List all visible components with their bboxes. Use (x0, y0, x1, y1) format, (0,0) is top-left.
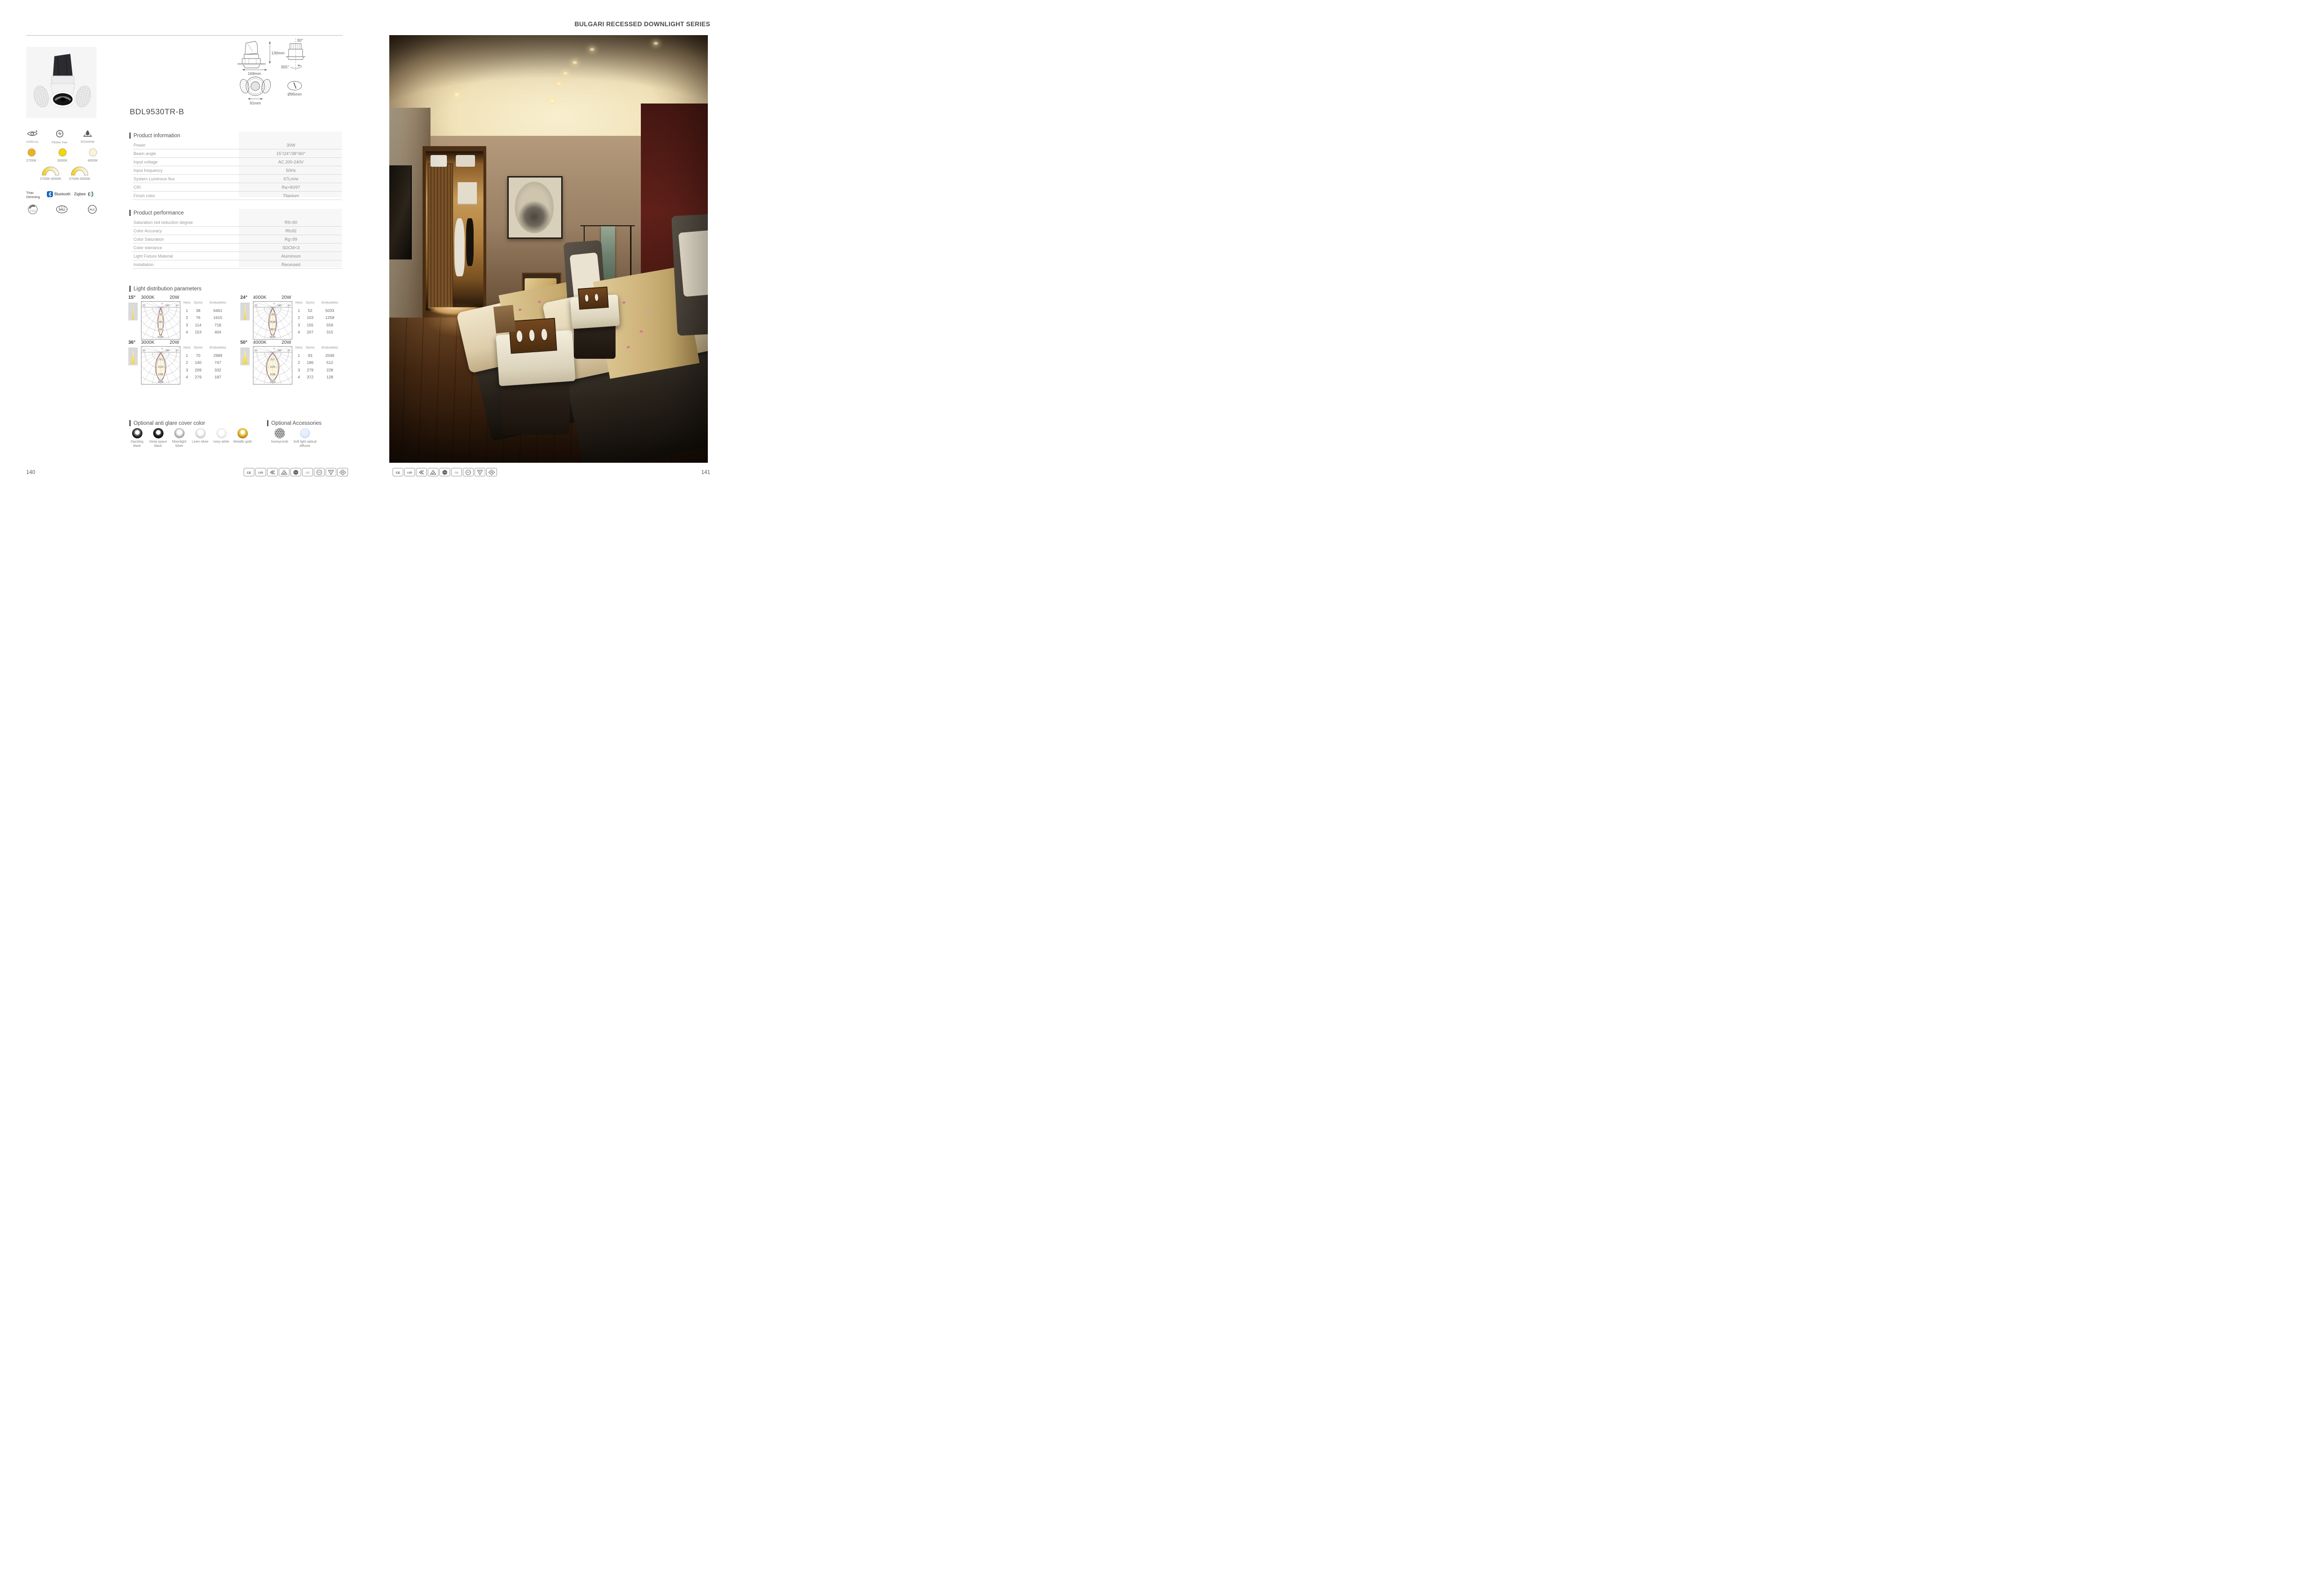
svg-text:CCC: CCC (318, 471, 321, 473)
svg-text:5076: 5076 (270, 336, 275, 339)
ld-cell: 404 (205, 330, 231, 334)
svg-text:CE: CE (396, 471, 401, 474)
power-label: 20W (282, 295, 291, 300)
ld-cell: 1615 (205, 315, 231, 320)
section-bar (129, 210, 131, 216)
ld-row: 4207315 (294, 329, 344, 336)
ld-cell: 4 (294, 330, 304, 334)
softlight-swatch (300, 428, 310, 438)
ld-cell: 187 (205, 375, 231, 379)
ld-col-header: H(m) (294, 346, 304, 352)
ld-diagram: 24°4000K20W0°90°180°90°1269253838075076H… (240, 295, 344, 340)
accessory-options: honeycombSoft light optical diffuser (267, 428, 318, 448)
cct-label: 3000K (141, 340, 155, 345)
cct-3000k-dot (59, 148, 67, 156)
cert-badge-ccc: CCC (314, 468, 325, 476)
glare-option: Ivory white (211, 428, 232, 448)
svg-text:2050: 2050 (270, 381, 275, 384)
ld-row: 3114718 (182, 321, 232, 329)
certification-badges-left: CELVDTÜVGBCCCF (244, 468, 348, 476)
cert-badge-rcm (279, 468, 290, 476)
glare-option: Deep space black (148, 428, 169, 448)
svg-text:761: 761 (159, 358, 163, 361)
spec-value: Aluminium (240, 254, 342, 259)
ld-col-header: H(m) (294, 301, 304, 307)
ld-cell: 747 (205, 360, 231, 365)
cert-badge-iii (486, 468, 497, 476)
ld-table: H(m)D(cm)Em(lux/klm)13864612761615311471… (182, 301, 232, 336)
spec-value: 30W (240, 143, 342, 148)
section-bar (129, 286, 131, 292)
spec-value: SDCM<3 (240, 245, 342, 250)
spec-label: Color Saturation (133, 237, 240, 242)
ld-cell: 279 (192, 375, 205, 379)
ld-cell: 4 (182, 330, 192, 334)
power-label: 20W (170, 295, 179, 300)
dim-height: 130mm (271, 51, 284, 55)
spec-value: Ra>90/97 (240, 185, 342, 190)
ld-cell: 140 (192, 360, 205, 365)
svg-text:0°: 0° (274, 348, 276, 350)
ld-col-header: D(cm) (304, 301, 317, 307)
ld-cell: 228 (317, 368, 343, 372)
beam-cone-icon (128, 303, 138, 320)
spec-row: Color AccuracyRf≥92 (133, 227, 342, 235)
power-label: 20W (170, 340, 179, 345)
glare-option: Metallic gold (232, 428, 253, 448)
section-anti-glare: Optional anti glare cover color (129, 420, 205, 426)
cert-badge-ccc: CCC (463, 468, 474, 476)
ld-row: 1932049 (294, 352, 344, 359)
zigbee-label: Zigbee (74, 192, 86, 196)
ld-cell: 332 (205, 368, 231, 372)
svg-text:CCC: CCC (467, 471, 470, 473)
dim-cutout: Ø95mm (288, 92, 302, 96)
ld-col-header: H(m) (182, 301, 192, 307)
spec-value: Recessed (240, 262, 342, 267)
svg-text:PLC: PLC (89, 208, 95, 211)
ld-row: 4153404 (182, 329, 232, 336)
cert-badge-rcm (428, 468, 438, 476)
spec-row: Color toleranceSDCM<3 (133, 244, 342, 252)
ld-cell: 718 (205, 323, 231, 327)
ld-col-header: Em(lux/klm) (205, 346, 231, 352)
bluetooth-label: Bluetooth (54, 192, 71, 196)
cct-label: 2700K (21, 158, 42, 163)
dazzling-swatch (132, 428, 142, 438)
ld-cell: 1 (294, 353, 304, 358)
svg-text:3046: 3046 (158, 381, 163, 384)
honeycomb-swatch (275, 428, 285, 438)
ld-col-header: Em(lux/klm) (317, 301, 343, 307)
swatch-label: Soft light optical diffuser (292, 440, 318, 448)
cert-badge-f: F (475, 468, 485, 476)
plc-icon: PLC (88, 205, 97, 216)
cert-badge-gb: GB (451, 468, 462, 476)
ld-cell: 3 (294, 368, 304, 372)
cert-badge-emc (267, 468, 278, 476)
spec-value: 15°/24°/38°/60° (240, 151, 342, 156)
ld-cell: 93 (304, 353, 317, 358)
ld-cell: 114 (192, 323, 205, 327)
feature-ip-rating: IP20/IP65 (74, 130, 102, 144)
ld-cell: 209 (192, 368, 205, 372)
svg-text:90°: 90° (287, 304, 291, 307)
dim-face: 91mm (250, 101, 261, 105)
ld-row: 4372128 (294, 374, 344, 381)
ld-row: 21031258 (294, 314, 344, 322)
ld-row: 1702989 (182, 352, 232, 359)
section-title: Product performance (134, 210, 184, 216)
svg-text:5043: 5043 (158, 328, 163, 331)
feature-flicker-free: Flicker free (45, 130, 74, 144)
bluetooth-icon (47, 191, 53, 197)
spec-row: Color SaturationRg=99 (133, 235, 342, 244)
moonlight-swatch (174, 428, 185, 438)
cct-range-label: 2700K-6500K (65, 177, 95, 181)
ld-col-header: D(cm) (192, 301, 205, 307)
swatch-label: honeycomb (267, 440, 292, 444)
spec-value: Rg=99 (240, 237, 342, 242)
svg-text:0°: 0° (274, 303, 276, 305)
spec-value: 67Lm/w (240, 177, 342, 181)
svg-text:CE: CE (247, 471, 252, 474)
svg-text:GB: GB (305, 472, 310, 474)
ld-cell: 1 (182, 353, 192, 358)
product-performance-table: Saturation red reduction degreeR9=90Colo… (133, 218, 342, 269)
ld-cell: 3 (294, 323, 304, 327)
section-title: Optional Accessories (271, 421, 321, 426)
spec-label: CRI (133, 185, 240, 190)
ld-table: H(m)D(cm)Em(lux/klm)19320492186512327922… (294, 346, 344, 381)
ld-row: 1525033 (294, 307, 344, 314)
ld-cell: 3 (182, 323, 192, 327)
svg-text:1681: 1681 (158, 313, 163, 316)
ld-cell: 2 (294, 360, 304, 365)
glare-option: Linen silver (190, 428, 211, 448)
power-label: 20W (282, 340, 291, 345)
cct-4000k-dot (89, 148, 97, 156)
ld-cell: 2 (182, 360, 192, 365)
feature-label: UGR<11 (18, 141, 46, 144)
waterproof-icon (82, 130, 93, 137)
accessory-option: honeycomb (267, 428, 292, 448)
swatch-label: Deep space black (148, 440, 169, 448)
ld-cell: 70 (192, 353, 205, 358)
svg-text:2285: 2285 (158, 373, 163, 376)
spec-row: Light Fixture MaterialAluminium (133, 252, 342, 260)
spec-row: Input voltageAC 200-240V (133, 158, 342, 166)
beam-cone-icon (128, 348, 138, 365)
page-number-left: 140 (26, 470, 35, 475)
spec-value: Titanium (240, 193, 342, 198)
ld-cell: 207 (304, 330, 317, 334)
ld-row: 3279228 (294, 366, 344, 374)
swatch-label: Linen silver (190, 440, 211, 444)
feature-ugr: UGR<11 (18, 130, 46, 144)
ld-table: H(m)D(cm)Em(lux/klm)17029892140747320933… (182, 346, 232, 381)
svg-text:90°: 90° (254, 304, 258, 307)
svg-text:180°: 180° (277, 304, 282, 307)
ld-col-header: Em(lux/klm) (205, 301, 231, 307)
glare-option: Dazzling black (126, 428, 148, 448)
ld-cell: 38 (192, 308, 205, 313)
svg-text:TÜV: TÜV (294, 471, 297, 473)
cert-badge-ce: CE (244, 468, 254, 476)
cct-label: 3000K (141, 295, 155, 300)
spec-label: Installation (133, 262, 240, 267)
cert-badge-lvd: LVD (404, 468, 415, 476)
ld-diagram: 36°3000K20W0°90°180°90°761152322853046H(… (128, 340, 232, 385)
beam-angle-label: 36° (128, 340, 135, 345)
svg-text:1523: 1523 (158, 366, 163, 369)
svg-text:1269: 1269 (270, 313, 275, 316)
dimension-drawings: 130mm 169mm 30° 355° 91mm Ø95mm (236, 37, 315, 116)
spec-row: Beam angle15°/24°/38°/60° (133, 149, 342, 158)
section-bar (129, 133, 131, 139)
ld-row: 2761615 (182, 314, 232, 322)
zigbee-icon (87, 191, 93, 197)
section-light-distribution: Light distribution parameters (129, 286, 201, 292)
ld-cell: 1 (294, 308, 304, 313)
cct-label: 4000K (253, 340, 267, 345)
section-bar (267, 420, 268, 426)
spec-label: Color tolerance (133, 245, 240, 250)
photo-vignette (389, 35, 708, 463)
ld-cell: 4 (294, 375, 304, 379)
svg-text:180°: 180° (165, 304, 170, 307)
beam-angle-label: 50° (240, 340, 247, 345)
svg-text:90°: 90° (287, 349, 291, 352)
spec-row: Finish colorTitanium (133, 192, 342, 200)
svg-text:LVD: LVD (258, 472, 263, 474)
svg-text:GB: GB (454, 472, 459, 474)
ld-cell: 559 (317, 323, 343, 327)
ld-row: 2186512 (294, 359, 344, 367)
ld-cell: 315 (317, 330, 343, 334)
ld-row: 3155559 (294, 321, 344, 329)
feature-label: Flicker free (45, 141, 74, 144)
cert-badge-lvd: LVD (255, 468, 266, 476)
ld-cell: 2989 (205, 353, 231, 358)
cert-badge-f: F (326, 468, 336, 476)
ld-col-header: H(m) (182, 346, 192, 352)
ld-cell: 512 (317, 360, 343, 365)
spec-label: Finish color (133, 193, 240, 198)
anti-glare-options: Dazzling blackDeep space blackMoonlight … (126, 428, 253, 448)
spec-label: Saturation red reduction degree (133, 220, 240, 225)
svg-text:TÜV: TÜV (443, 471, 446, 473)
ld-col-header: D(cm) (192, 346, 205, 352)
product-model: BDL9530TR-B (130, 107, 184, 117)
ld-cell: 2049 (317, 353, 343, 358)
spec-label: Power (133, 143, 240, 148)
svg-text:90°: 90° (142, 349, 146, 352)
flicker-free-icon (56, 130, 64, 138)
section-title: Optional anti glare cover color (134, 421, 205, 426)
ld-col-header: D(cm) (304, 346, 317, 352)
gold-swatch (238, 428, 248, 438)
svg-text:90°: 90° (175, 304, 179, 307)
room-photo (389, 35, 708, 463)
svg-text:3362: 3362 (158, 321, 163, 324)
spec-label: Color Accuracy (133, 229, 240, 233)
ld-cell: 6461 (205, 308, 231, 313)
svg-text:0°: 0° (162, 348, 164, 350)
spec-value: 50Hz (240, 168, 342, 173)
cct-label: 4000K (253, 295, 267, 300)
ld-col-header: Em(lux/klm) (317, 346, 343, 352)
ld-cell: 3 (182, 368, 192, 372)
cert-badge-gb: GB (302, 468, 313, 476)
deepspace-swatch (153, 428, 163, 438)
dim-rotation: 355° (281, 65, 289, 69)
ld-cell: 5033 (317, 308, 343, 313)
dim-width: 169mm (248, 71, 261, 76)
svg-text:90°: 90° (142, 304, 146, 307)
series-title: BULGARI RECESSED DOWNLIGHT SERIES (574, 21, 710, 28)
section-title: Light distribution parameters (134, 286, 201, 292)
spec-value: R9=90 (240, 220, 342, 225)
feature-label: IP20/IP65 (74, 141, 102, 144)
section-bar (129, 420, 131, 426)
svg-text:2538: 2538 (270, 321, 275, 324)
bluetooth-item: Bluetooth (47, 191, 71, 197)
ugr-eye-icon (27, 130, 38, 137)
swatch-label: Dazzling black (126, 440, 148, 448)
accessory-option: Soft light optical diffuser (292, 428, 318, 448)
ivory-swatch (216, 428, 227, 438)
ld-row: 3209332 (182, 366, 232, 374)
glare-option: Moonlight Silver (169, 428, 190, 448)
ld-cell: 372 (304, 375, 317, 379)
ld-cell: 155 (304, 323, 317, 327)
beam-cone-icon (240, 348, 250, 365)
svg-text:512: 512 (271, 358, 275, 361)
downlight-illustration (26, 47, 97, 118)
ld-cell: 128 (317, 375, 343, 379)
spec-value: AC 200-240V (240, 160, 342, 164)
page-number-right: 141 (701, 470, 710, 475)
cct-label: 4000K (82, 158, 104, 163)
triac-dimming-label: Triac Dimming (26, 191, 46, 199)
svg-text:180°: 180° (277, 349, 282, 352)
spec-label: Input frequency (133, 168, 240, 173)
svg-text:DALI: DALI (59, 208, 65, 212)
ld-row: 1386461 (182, 307, 232, 314)
ld-cell: 1 (182, 308, 192, 313)
ld-row: 4279187 (182, 374, 232, 381)
spec-row: Saturation red reduction degreeR9=90 (133, 218, 342, 227)
ld-cell: 2 (182, 315, 192, 320)
section-accessories: Optional Accessories (267, 420, 321, 426)
ld-cell: 103 (304, 315, 317, 320)
ld-table: H(m)D(cm)Em(lux/klm)15250332103125831555… (294, 301, 344, 336)
cct-range-label: 2700K-6000K (36, 177, 66, 181)
ld-diagram: 15°3000K20W0°90°180°90°1681336250436724H… (128, 295, 232, 340)
svg-text:1538: 1538 (270, 373, 275, 376)
cert-badge-emc (416, 468, 427, 476)
spec-row: InstallationRecessed (133, 260, 342, 269)
linen-swatch (195, 428, 206, 438)
svg-text:6724: 6724 (158, 336, 163, 339)
beam-angle-label: 24° (240, 295, 247, 300)
ld-cell: 4 (182, 375, 192, 379)
cct-label: 3000K (52, 158, 73, 163)
spec-row: System Luminous flux67Lm/w (133, 175, 342, 183)
dim-tilt: 30° (297, 38, 303, 43)
svg-text:0~10V: 0~10V (30, 210, 36, 212)
swatch-label: Metallic gold (232, 440, 253, 444)
svg-text:90°: 90° (175, 349, 179, 352)
cert-badge-tuv: TÜV (439, 468, 450, 476)
spec-label: Beam angle (133, 151, 240, 156)
spec-label: Light Fixture Material (133, 254, 240, 259)
product-photo (26, 47, 97, 118)
spec-value: Rf≥92 (240, 229, 342, 233)
catalog-spread: BULGARI RECESSED DOWNLIGHT SERIES (0, 0, 726, 493)
product-information-table: Power30WBeam angle15°/24°/38°/60°Input v… (133, 141, 342, 200)
ld-row: 2140747 (182, 359, 232, 367)
svg-text:0°: 0° (162, 303, 164, 305)
spec-label: System Luminous flux (133, 177, 240, 181)
section-product-performance: Product performance (129, 210, 184, 216)
section-product-information: Product information (129, 133, 180, 139)
swatch-label: Moonlight Silver (169, 440, 190, 448)
spec-row: Power30W (133, 141, 342, 149)
svg-text:90°: 90° (254, 349, 258, 352)
ld-cell: 153 (192, 330, 205, 334)
beam-angle-label: 15° (128, 295, 135, 300)
ld-cell: 76 (192, 315, 205, 320)
svg-text:3807: 3807 (270, 328, 275, 331)
ld-diagram: 50°4000K20W0°90°180°90°512102515382050H(… (240, 340, 344, 385)
cert-badge-iii (337, 468, 348, 476)
swatch-label: Ivory white (211, 440, 232, 444)
ld-cell: 52 (304, 308, 317, 313)
svg-text:180°: 180° (165, 349, 170, 352)
cct-2700k-dot (28, 148, 36, 156)
spec-row: CRIRa>90/97 (133, 183, 342, 192)
cert-badge-ce: CE (393, 468, 403, 476)
ld-cell: 279 (304, 368, 317, 372)
certification-badges-right: CELVDTÜVGBCCCF (393, 468, 497, 476)
spec-label: Input voltage (133, 160, 240, 164)
beam-cone-icon (240, 303, 250, 320)
header-rule (26, 35, 343, 36)
ld-cell: 1258 (317, 315, 343, 320)
ld-cell: 2 (294, 315, 304, 320)
svg-text:F: F (479, 470, 481, 473)
zigbee-item: Zigbee (74, 191, 93, 197)
spec-row: Input frequency50Hz (133, 166, 342, 175)
light-distribution-grid: 15°3000K20W0°90°180°90°1681336250436724H… (128, 295, 345, 389)
cert-badge-tuv: TÜV (290, 468, 301, 476)
ld-cell: 186 (304, 360, 317, 365)
dali-icon: DALI (56, 205, 68, 216)
svg-text:1025: 1025 (270, 366, 275, 369)
dim-0-10v-icon: 0~10V (28, 204, 38, 217)
section-title: Product information (134, 133, 180, 139)
svg-text:LVD: LVD (407, 472, 412, 474)
svg-text:F: F (330, 470, 332, 473)
